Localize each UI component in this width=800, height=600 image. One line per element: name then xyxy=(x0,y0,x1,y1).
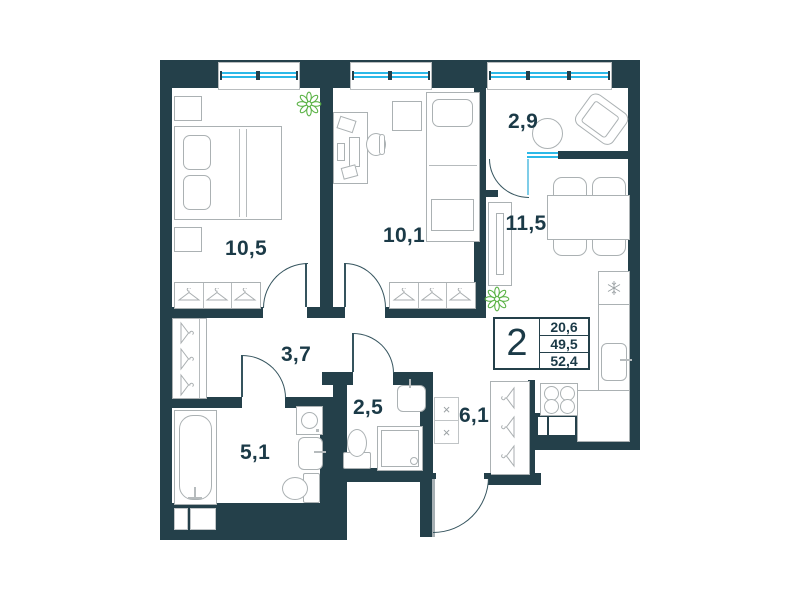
room-area-label-kitchen-living: 11,5 xyxy=(506,212,547,236)
cabinet xyxy=(392,101,422,131)
unit-area-value: 49,5 xyxy=(540,335,588,352)
wall-shower-left xyxy=(333,372,347,503)
room-area-label-bedroom-1: 10,5 xyxy=(225,237,267,261)
room-area-label-hallway: 3,7 xyxy=(281,343,311,367)
window-glazing xyxy=(527,156,558,158)
hanger-icon xyxy=(497,415,521,439)
window-mullion xyxy=(256,71,260,80)
hanger-wrap xyxy=(174,347,198,371)
burner xyxy=(544,399,559,414)
armchair xyxy=(571,90,632,149)
hallway-wardrobe xyxy=(172,318,207,399)
door-arc-bedroom-1 xyxy=(263,263,308,308)
hanger-icon xyxy=(174,321,198,345)
vent-shaft: × xyxy=(434,397,459,421)
door-arc-bathroom xyxy=(242,355,286,398)
stove xyxy=(540,383,578,416)
room-area-label-entry-hall: 6,1 xyxy=(459,404,489,428)
window-end-cap xyxy=(352,71,354,80)
entrance-door-arc xyxy=(433,477,489,533)
balcony-door-glazing xyxy=(527,151,558,159)
unit-area-value: 52,4 xyxy=(540,352,588,369)
snowflake-icon xyxy=(606,280,622,296)
washing-machine xyxy=(296,406,323,435)
entrance-door-jamb xyxy=(429,473,436,479)
unit-area-value: 20,6 xyxy=(540,319,588,335)
wardrobe-divider xyxy=(199,319,200,398)
door-arc-shower-room xyxy=(353,333,394,373)
washer-knob xyxy=(316,429,319,432)
window-end-cap xyxy=(220,71,222,80)
window-mullion xyxy=(388,71,392,80)
kitchen-sink xyxy=(601,343,627,381)
wall-balcony-stub xyxy=(480,190,498,197)
window-mullion xyxy=(526,71,530,80)
hanger-icon xyxy=(205,288,229,302)
plant-icon xyxy=(484,286,510,312)
toilet-bowl xyxy=(347,429,367,457)
wardrobe-divider xyxy=(418,283,419,308)
wall-bottom-left-block xyxy=(160,503,347,540)
wardrobe-divider xyxy=(203,283,204,308)
hanger-icon xyxy=(177,288,201,302)
window-mullion xyxy=(567,71,571,80)
single-bed xyxy=(426,92,480,242)
wall-bedroom-divider xyxy=(320,88,333,318)
window-balcony xyxy=(487,62,612,90)
shaft-niche-2 xyxy=(190,508,216,530)
room-area-label-balcony: 2,9 xyxy=(508,110,538,134)
sink-faucet xyxy=(314,451,326,453)
room-area-label-bedroom-2: 10,1 xyxy=(383,224,425,248)
bathtub xyxy=(174,410,217,505)
vent-cross-icon: × xyxy=(443,425,451,440)
entry-closet xyxy=(490,381,530,475)
hanger-icon xyxy=(174,347,198,371)
pillow xyxy=(183,135,211,170)
pillow xyxy=(432,99,473,127)
wardrobe xyxy=(174,282,261,309)
cabinet-handle-line xyxy=(496,213,504,275)
desk-papers xyxy=(341,164,359,179)
burner xyxy=(560,399,575,414)
room-area-label-shower-room: 2,5 xyxy=(353,396,383,420)
hanger-icon xyxy=(174,373,198,397)
hanger-wrap xyxy=(174,373,198,397)
window-glazing xyxy=(490,72,609,74)
hanger-icon xyxy=(420,288,444,302)
window-bedroom-2 xyxy=(350,62,432,90)
wall-balcony-divider xyxy=(558,151,628,159)
wall-between-doors xyxy=(307,307,345,318)
double-bed xyxy=(174,126,282,220)
hanger-wrap xyxy=(497,386,521,410)
vent-shaft: × xyxy=(434,420,459,444)
hanger-wrap xyxy=(497,444,521,468)
window-end-cap xyxy=(428,71,430,80)
hanger-wrap xyxy=(174,321,198,345)
dining-table xyxy=(547,195,630,240)
unit-info-table: 2 20,6 49,5 52,4 xyxy=(493,317,590,370)
kitchen-counter-corner xyxy=(577,390,630,442)
hanger-icon xyxy=(233,288,257,302)
kitchen-niche-1 xyxy=(538,417,547,435)
wardrobe-divider xyxy=(446,283,447,308)
wall-left xyxy=(160,60,172,540)
entrance-door-jamb xyxy=(484,473,491,479)
plant-icon xyxy=(296,91,322,117)
unit-areas: 20,6 49,5 52,4 xyxy=(540,319,588,368)
kitchen-niche-2 xyxy=(549,417,575,435)
blanket-line xyxy=(429,165,477,166)
blanket-fold-line xyxy=(246,129,247,217)
washer-drum xyxy=(301,412,318,429)
wardrobe-divider xyxy=(231,283,232,308)
shower-cabin xyxy=(377,426,423,471)
desk-chair-back xyxy=(379,134,385,155)
shaft-niche-1 xyxy=(174,508,188,530)
floor-plan: × × 10,5 10,1 2,9 11,5 3,7 2,5 6,1 5,1 2… xyxy=(0,0,800,600)
blanket-fold-line xyxy=(239,129,240,217)
unit-rooms-count: 2 xyxy=(495,319,540,368)
hanger-icon xyxy=(497,444,521,468)
door-arc-bedroom-2 xyxy=(345,263,386,308)
nightstand xyxy=(174,227,202,252)
kitchen-faucet xyxy=(620,359,632,361)
hanger-icon xyxy=(448,288,472,302)
sink-faucet xyxy=(409,379,411,388)
desk-item xyxy=(337,143,345,161)
window-bedroom-1 xyxy=(218,62,300,90)
toilet-bowl xyxy=(282,477,308,500)
vent-cross-icon: × xyxy=(443,402,451,417)
bathroom-sink xyxy=(298,437,323,470)
window-end-cap xyxy=(296,71,298,80)
wardrobe xyxy=(389,282,476,309)
bed-footer xyxy=(431,199,474,231)
pillow xyxy=(183,175,211,210)
room-area-label-bathroom: 5,1 xyxy=(240,441,270,465)
window-glazing xyxy=(527,152,558,154)
hanger-icon xyxy=(392,288,416,302)
hanger-wrap xyxy=(497,415,521,439)
window-glazing xyxy=(490,76,609,78)
shower-drain xyxy=(410,457,418,465)
desk-monitor xyxy=(349,137,360,167)
desk-papers xyxy=(336,116,356,134)
window-end-cap xyxy=(608,71,610,80)
fridge xyxy=(598,271,630,306)
desk xyxy=(333,112,368,184)
wall-shower-top-left xyxy=(322,372,353,385)
bathtub-faucet xyxy=(188,497,202,499)
shower-room-sink xyxy=(397,385,426,412)
nightstand xyxy=(174,96,202,121)
hanger-icon xyxy=(497,386,521,410)
window-end-cap xyxy=(489,71,491,80)
